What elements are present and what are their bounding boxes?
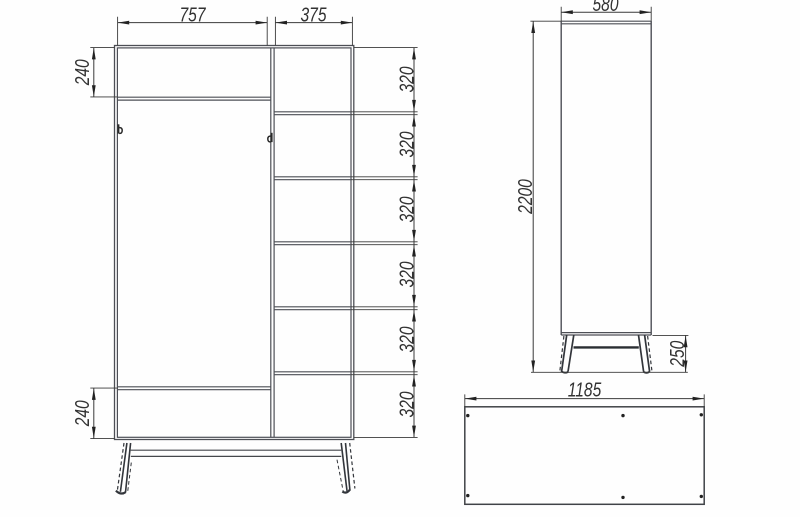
svg-text:250: 250 xyxy=(666,341,688,368)
svg-text:580: 580 xyxy=(592,0,618,15)
svg-text:320: 320 xyxy=(395,261,417,287)
svg-text:320: 320 xyxy=(395,391,417,417)
svg-text:757: 757 xyxy=(179,4,206,26)
svg-text:2200: 2200 xyxy=(514,179,536,215)
svg-text:1185: 1185 xyxy=(568,379,602,401)
svg-text:240: 240 xyxy=(71,400,93,427)
svg-text:320: 320 xyxy=(395,131,417,157)
svg-text:375: 375 xyxy=(300,4,327,26)
svg-text:320: 320 xyxy=(395,196,417,222)
svg-text:320: 320 xyxy=(395,326,417,352)
svg-text:240: 240 xyxy=(71,59,93,86)
svg-text:320: 320 xyxy=(395,66,417,92)
